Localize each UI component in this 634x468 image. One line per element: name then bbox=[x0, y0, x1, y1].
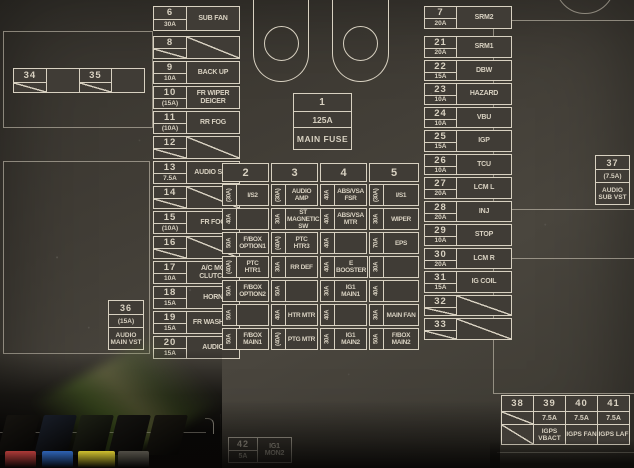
fuse-number: 19 bbox=[154, 312, 186, 324]
fuse-number-column: 3115A bbox=[424, 271, 457, 293]
fuse-label: IGP bbox=[456, 130, 512, 152]
fuse-label bbox=[236, 304, 269, 326]
fuse-label: MAIN FAN bbox=[383, 304, 419, 326]
fuse-body bbox=[108, 415, 151, 455]
fuse-number: 41 bbox=[598, 396, 629, 412]
fuse-cell-row: (30A)I/S1 bbox=[369, 184, 419, 206]
fuse-amps: 10A bbox=[154, 74, 186, 83]
fuse-cell-row: 70AEPS bbox=[369, 232, 419, 254]
fuse-number-column: 2910A bbox=[424, 224, 457, 246]
fuse-amps bbox=[154, 249, 186, 258]
fuse-label: PTC HTR1 bbox=[236, 256, 269, 278]
fuse-amps bbox=[425, 331, 456, 339]
fuse-amps: 15A bbox=[425, 73, 456, 81]
fuse-42-label: IG1 MON2 bbox=[257, 437, 292, 463]
fuse-number-column: 1915A bbox=[153, 311, 187, 334]
fuse-amps: 20A bbox=[425, 49, 456, 57]
fuse-amps: 20A bbox=[425, 261, 456, 269]
fuse-label bbox=[236, 208, 269, 230]
fuse-number: 21 bbox=[425, 37, 456, 49]
fuse-number: 22 bbox=[425, 61, 456, 73]
fuse-number-column: 2410A bbox=[424, 107, 457, 129]
relay-diagonal bbox=[14, 83, 46, 92]
left-fuse-column: 630ASUB FAN8910ABACK UP10(15A)FR WIPER D… bbox=[153, 6, 240, 366]
fuse-row-6: 630ASUB FAN bbox=[153, 6, 240, 31]
fuse-label: RR FOG bbox=[186, 111, 240, 134]
fuse-amps-vertical: 30A bbox=[369, 208, 384, 230]
fuse-amps-vertical: 40A bbox=[320, 184, 335, 206]
fuse-number: 25 bbox=[425, 131, 456, 143]
main-fuse-amps: 125A bbox=[294, 112, 351, 128]
fuse-row-25: 2515AIGP bbox=[424, 130, 512, 152]
fuse-cell-row: 30AST MAGNETIC SW bbox=[271, 208, 318, 230]
bottom-center-panel-line bbox=[220, 414, 221, 468]
fuse-row-21: 2120ASRM1 bbox=[424, 36, 512, 58]
fuse-amps: 7.5A bbox=[534, 412, 565, 425]
fuse-body bbox=[145, 415, 188, 455]
fuse-number-column: 2120A bbox=[424, 36, 457, 58]
fuse-label: HORN bbox=[186, 286, 240, 309]
fuse-label: IGPS LAF bbox=[598, 425, 629, 444]
fuse-amps-vertical: 30A bbox=[320, 328, 335, 350]
fuse-amps: 15A bbox=[154, 324, 186, 333]
fuse-row-30: 3020ALCM R bbox=[424, 248, 512, 270]
fuse-42-amps: 5A bbox=[229, 451, 257, 462]
fuse-comb-hook bbox=[205, 418, 214, 434]
fuse-amps-vertical: 30A bbox=[320, 280, 335, 302]
fuse-label bbox=[383, 280, 419, 302]
fuse-label: ST MAGNETIC SW bbox=[285, 208, 321, 230]
fuse-number-column: 720A bbox=[424, 6, 457, 29]
fuse-body bbox=[34, 415, 77, 455]
fuse-number-column: 1710A bbox=[153, 261, 187, 284]
fuse-body bbox=[0, 415, 40, 455]
fuse-number-column: 2215A bbox=[424, 60, 457, 82]
fuse-label: F/BOX MAIN1 bbox=[236, 328, 269, 350]
fuse-box-36: 36 (15A) AUDIO MAIN VST bbox=[108, 300, 144, 350]
fuse-label: F/BOX MAIN2 bbox=[383, 328, 419, 350]
fuse-amps-vertical: (30A) bbox=[369, 184, 384, 206]
fuse-label: WIPER bbox=[383, 208, 419, 230]
fuse-label bbox=[186, 186, 240, 209]
fuse-label: RR DEF bbox=[285, 256, 318, 278]
fuse-cap bbox=[5, 451, 36, 468]
fuse-amps bbox=[154, 199, 186, 208]
fuse-label: E BOOSTER bbox=[334, 256, 368, 278]
fuse-amps-vertical: 50A bbox=[369, 328, 384, 350]
relay-box-34-35-outline: 3435 bbox=[3, 31, 153, 128]
fuse-amps-vertical: 30A bbox=[369, 256, 384, 278]
fuse-row-20: 2015AAUDIO bbox=[153, 336, 240, 359]
fuse-number-column: 8 bbox=[153, 36, 187, 59]
fuse-number: 6 bbox=[154, 7, 186, 20]
fuse-36-number: 36 bbox=[109, 301, 143, 315]
fuse-column-40: 407.5AIGPS FAN bbox=[565, 395, 598, 445]
fuse-amps bbox=[154, 49, 186, 58]
fuse-box-panel: 3435 1 125A MAIN FUSE 36 (15A) AUDIO MAI… bbox=[0, 0, 634, 468]
fuse-label: INJ bbox=[456, 201, 512, 223]
fuse-label: LCM R bbox=[456, 248, 512, 270]
fuse-number-column: 137.5A bbox=[153, 161, 187, 184]
fuse-number-column: 11(10A) bbox=[153, 111, 187, 134]
fuse-amps: 10A bbox=[425, 120, 456, 128]
fuse-label: VBU bbox=[456, 107, 512, 129]
relay-cell bbox=[46, 68, 80, 93]
fuse-42-number: 42 bbox=[229, 438, 257, 451]
fuse-number-column: 15(10A) bbox=[153, 211, 187, 234]
fuse-cell-row: 40AABS/VSA FSR bbox=[320, 184, 367, 206]
fuse-cell-row: (40A)PTG MTR bbox=[271, 328, 318, 350]
fuse-cell-row: (40A)PTC HTR3 bbox=[271, 232, 318, 254]
fuse-cell-row: 30AIG1 MAIN2 bbox=[320, 328, 367, 350]
fuse-37-number: 37 bbox=[596, 156, 629, 170]
fuse-number: 30 bbox=[425, 249, 456, 261]
relay-cell bbox=[111, 68, 145, 93]
fuse-row-8: 8 bbox=[153, 36, 240, 59]
fuse-number-column: 33 bbox=[424, 318, 457, 340]
fuse-label: DBW bbox=[456, 60, 512, 82]
fuse-amps-vertical: 40A bbox=[320, 304, 335, 326]
fuse-row-24: 2410AVBU bbox=[424, 107, 512, 129]
fuse-row-31: 3115AIG COIL bbox=[424, 271, 512, 293]
fuse-cap bbox=[78, 451, 115, 468]
top-edge-cutout-arc bbox=[555, 0, 615, 14]
fuse-row-19: 1915AFR WASHER bbox=[153, 311, 240, 334]
fuse-label bbox=[502, 425, 533, 444]
fuse-column-39: 397.5AIGPS VBACT bbox=[533, 395, 566, 445]
fuse-number-column: 32 bbox=[424, 295, 457, 317]
fuse-column-header: 5 bbox=[369, 163, 419, 182]
fuse-number: 17 bbox=[154, 262, 186, 274]
fuse-amps-vertical: 30A bbox=[369, 304, 384, 326]
fuse-label: IG1 MAIN1 bbox=[334, 280, 367, 302]
fuse-row-7: 720ASRM2 bbox=[424, 6, 512, 29]
fuse-row-17: 1710AA/C MG CLUTCH bbox=[153, 261, 240, 284]
fuse-cell-row: 50AF/BOX MAIN2 bbox=[369, 328, 419, 350]
fuse-number: 7 bbox=[425, 7, 456, 19]
fuse-number-column: 2720A bbox=[424, 177, 457, 199]
fuse-amps-vertical: 30A bbox=[271, 256, 286, 278]
fuse-amps: (10A) bbox=[154, 224, 186, 233]
fuse-amps: (10A) bbox=[154, 124, 186, 133]
fuse-amps-vertical: (40A) bbox=[271, 232, 286, 254]
fuse-amps: 20A bbox=[425, 190, 456, 198]
fuse-number: 20 bbox=[154, 337, 186, 349]
fuse-label: BACK UP bbox=[186, 61, 240, 84]
fuse-number: 16 bbox=[154, 237, 186, 249]
fuse-label: SRM2 bbox=[456, 6, 512, 29]
bottom-right-edge-line bbox=[497, 452, 634, 453]
fuse-amps: 20A bbox=[425, 19, 456, 28]
fuse-number: 10 bbox=[154, 87, 186, 99]
fuse-label bbox=[186, 136, 240, 159]
fuse-cell-row: 40AE BOOSTER bbox=[320, 256, 367, 278]
relay-number: 35 bbox=[80, 69, 112, 83]
fuse-amps: 7.5A bbox=[598, 412, 629, 425]
fuse-row-33: 33 bbox=[424, 318, 512, 340]
fuse-number: 23 bbox=[425, 84, 456, 96]
fuse-column-header: 3 bbox=[271, 163, 318, 182]
fuse-label: EPS bbox=[383, 232, 419, 254]
fuse-label bbox=[456, 295, 512, 317]
fuse-cell-row: (30A)AUDIO AMP bbox=[271, 184, 318, 206]
fuse-number: 28 bbox=[425, 202, 456, 214]
fuse-amps: 30A bbox=[154, 20, 186, 30]
fuse-number: 24 bbox=[425, 108, 456, 120]
fuse-amps: 10A bbox=[425, 237, 456, 245]
fuse-amps: 15A bbox=[425, 284, 456, 292]
fuse-row-9: 910ABACK UP bbox=[153, 61, 240, 84]
fuse-row-26: 2610ATCU bbox=[424, 154, 512, 176]
fuse-label: SRM1 bbox=[456, 36, 512, 58]
fuse-cell-row: 40A bbox=[320, 304, 367, 326]
fuse-label: PTG MTR bbox=[285, 328, 318, 350]
fuse-36-label: AUDIO MAIN VST bbox=[109, 328, 143, 349]
fuse-number: 18 bbox=[154, 287, 186, 299]
fuse-cell-row: 40A bbox=[369, 280, 419, 302]
fuse-amps bbox=[154, 149, 186, 158]
fuse-amps bbox=[502, 412, 533, 425]
fuse-number-column: 910A bbox=[153, 61, 187, 84]
fuse-cell-row: 30AIG1 MAIN1 bbox=[320, 280, 367, 302]
fuse-amps: 10A bbox=[425, 167, 456, 175]
fuse-column-41: 417.5AIGPS LAF bbox=[597, 395, 630, 445]
right-lower-panel-outline bbox=[493, 258, 634, 394]
fuse-label: I/S1 bbox=[383, 184, 419, 206]
fuse-label: AUDIO AMP bbox=[285, 184, 318, 206]
fuse-number: 15 bbox=[154, 212, 186, 224]
fuse-number: 13 bbox=[154, 162, 186, 174]
fuse-amps: 15A bbox=[425, 143, 456, 151]
fuse-label: AUDIO SUB bbox=[186, 161, 240, 184]
fuse-row-10: 10(15A)FR WIPER DEICER bbox=[153, 86, 240, 109]
fuse-amps: 10A bbox=[154, 274, 186, 283]
relay-strip: 3435 bbox=[14, 68, 145, 93]
fuse-label: AUDIO bbox=[186, 336, 240, 359]
fuse-number-column: 2515A bbox=[424, 130, 457, 152]
fuse-label: LCM L bbox=[456, 177, 512, 199]
fuse-amps-vertical: 30A bbox=[271, 208, 286, 230]
fuse-amps-vertical: 50A bbox=[271, 280, 286, 302]
main-fuse-number: 1 bbox=[294, 94, 351, 112]
fuse-label: IGPS VBACT bbox=[534, 425, 565, 444]
fuse-amps: 20A bbox=[425, 214, 456, 222]
fuse-number: 26 bbox=[425, 155, 456, 167]
fuse-cell-row: 30A bbox=[369, 256, 419, 278]
fuse-amps: 10A bbox=[425, 96, 456, 104]
fuse-36-amps: (15A) bbox=[109, 315, 143, 328]
fuse-number: 38 bbox=[502, 396, 533, 412]
fuse-label: HTR MTR bbox=[285, 304, 318, 326]
fuse-number-column: 1815A bbox=[153, 286, 187, 309]
fuse-label: F/BOX OPTION2 bbox=[236, 280, 269, 302]
fuse-cell-row: 40AABS/VSA MTR bbox=[320, 208, 367, 230]
relay-cell-35: 35 bbox=[79, 68, 113, 93]
fuse-number-column: 630A bbox=[153, 6, 187, 31]
fuse-row-16: 16 bbox=[153, 236, 240, 259]
fuse-number: 12 bbox=[154, 137, 186, 149]
fuse-amps-vertical: (40A) bbox=[271, 328, 286, 350]
fuse-label: FR WASHER bbox=[186, 311, 240, 334]
fuse-amps: 15A bbox=[154, 299, 186, 308]
main-fuse-label: MAIN FUSE bbox=[294, 128, 351, 149]
fuse-row-32: 32 bbox=[424, 295, 512, 317]
fuse-row-13: 137.5AAUDIO SUB bbox=[153, 161, 240, 184]
fuse-cell-row: 30AWIPER bbox=[369, 208, 419, 230]
fuse-column-4: 440AABS/VSA FSR40AABS/VSA MTR40A40AE BOO… bbox=[320, 163, 367, 353]
fuse-37-label: AUDIO SUB VST bbox=[596, 183, 629, 204]
relay-diagonal bbox=[80, 83, 112, 92]
fuse-label bbox=[186, 36, 240, 59]
fuse-amps-vertical: 70A bbox=[369, 232, 384, 254]
fuse-cell-row: 40A bbox=[320, 232, 367, 254]
main-fuse-terminal-right-hole-icon bbox=[343, 26, 378, 61]
fuse-number: 8 bbox=[154, 37, 186, 49]
fuse-row-28: 2820AINJ bbox=[424, 201, 512, 223]
fuse-amps-vertical: 40A bbox=[320, 256, 335, 278]
fuse-amps: 7.5A bbox=[154, 174, 186, 183]
fuse-cell-row: 30ARR DEF bbox=[271, 256, 318, 278]
main-fuse-box: 1 125A MAIN FUSE bbox=[293, 93, 352, 150]
fuse-box-37: 37 (7.5A) AUDIO SUB VST bbox=[595, 155, 630, 205]
fuse-label: IG COIL bbox=[456, 271, 512, 293]
fuse-amps: 15A bbox=[154, 349, 186, 358]
fuse-amps-vertical: (30A) bbox=[271, 184, 286, 206]
fuse-37-amps: (7.5A) bbox=[596, 170, 629, 183]
relay-number: 34 bbox=[14, 69, 46, 83]
fuse-column-3: 3(30A)AUDIO AMP30AST MAGNETIC SW(40A)PTC… bbox=[271, 163, 318, 353]
fuse-number-column: 10(15A) bbox=[153, 86, 187, 109]
fuse-number: 39 bbox=[534, 396, 565, 412]
relay-cell-34: 34 bbox=[13, 68, 47, 93]
fuse-cell-row: 50A bbox=[271, 280, 318, 302]
fuse-amps: (15A) bbox=[154, 99, 186, 108]
fuse-label: TCU bbox=[456, 154, 512, 176]
fuse-label: IG1 MAIN2 bbox=[334, 328, 367, 350]
fuse-label: ABS/VSA MTR bbox=[334, 208, 367, 230]
fuse-number-column: 3020A bbox=[424, 248, 457, 270]
fuse-row-29: 2910ASTOP bbox=[424, 224, 512, 246]
fuse-number-column: 2820A bbox=[424, 201, 457, 223]
fuse-box-42: 42 5A IG1 MON2 bbox=[228, 437, 292, 463]
fuse-number-column: 2015A bbox=[153, 336, 187, 359]
fuse-label bbox=[383, 256, 419, 278]
fuse-label: FR FOG bbox=[186, 211, 240, 234]
main-fuse-terminal-left-hole-icon bbox=[264, 26, 299, 61]
fuse-label bbox=[186, 236, 240, 259]
bottom-right-fuse-table: 38397.5AIGPS VBACT407.5AIGPS FAN417.5AIG… bbox=[502, 395, 634, 445]
fuse-number-column: 14 bbox=[153, 186, 187, 209]
fuse-label: I/S2 bbox=[236, 184, 269, 206]
fuse-cell-row: 40AHTR MTR bbox=[271, 304, 318, 326]
fuse-label: ABS/VSA FSR bbox=[334, 184, 367, 206]
fuse-number: 33 bbox=[425, 319, 456, 331]
fuse-column-5: 5(30A)I/S130AWIPER70AEPS30A40A30AMAIN FA… bbox=[369, 163, 419, 353]
fuse-number-column: 2610A bbox=[424, 154, 457, 176]
fuse-amps bbox=[425, 308, 456, 316]
fuse-label: FR WIPER DEICER bbox=[186, 86, 240, 109]
fuse-row-23: 2310AHAZARD bbox=[424, 83, 512, 105]
fuse-label bbox=[285, 280, 318, 302]
fuse-label: SUB FAN bbox=[186, 6, 240, 31]
fuse-row-12: 12 bbox=[153, 136, 240, 159]
fuse-label: HAZARD bbox=[456, 83, 512, 105]
fuse-label: F/BOX OPTION1 bbox=[236, 232, 269, 254]
fuse-number: 29 bbox=[425, 225, 456, 237]
fuse-number: 11 bbox=[154, 112, 186, 124]
fuse-amps-vertical: 40A bbox=[271, 304, 286, 326]
fuse-row-18: 1815AHORN bbox=[153, 286, 240, 309]
fuse-label: STOP bbox=[456, 224, 512, 246]
fuse-number-column: 16 bbox=[153, 236, 187, 259]
fuse-label: A/C MG CLUTCH bbox=[186, 261, 240, 284]
fuse-row-11: 11(10A)RR FOG bbox=[153, 111, 240, 134]
fuse-column-38: 38 bbox=[501, 395, 534, 445]
fuse-amps: 7.5A bbox=[566, 412, 597, 425]
right-fuse-column: 720ASRM22120ASRM12215ADBW2310AHAZARD2410… bbox=[424, 6, 512, 346]
fuse-row-22: 2215ADBW bbox=[424, 60, 512, 82]
fuse-cap bbox=[118, 451, 149, 468]
fuse-number: 14 bbox=[154, 187, 186, 199]
fuse-label bbox=[456, 318, 512, 340]
fuse-row-14: 14 bbox=[153, 186, 240, 209]
fuse-body bbox=[71, 415, 114, 455]
fuse-label: IGPS FAN bbox=[566, 425, 597, 444]
fuse-number-column: 2310A bbox=[424, 83, 457, 105]
fuse-amps-vertical: 40A bbox=[320, 232, 335, 254]
fuse-row-15: 15(10A)FR FOG bbox=[153, 211, 240, 234]
fuse-label bbox=[334, 304, 367, 326]
fuse-number: 27 bbox=[425, 178, 456, 190]
fuse-number: 40 bbox=[566, 396, 597, 412]
fuse-number-column: 12 bbox=[153, 136, 187, 159]
fuse-cell-row: 30AMAIN FAN bbox=[369, 304, 419, 326]
fuse-row-27: 2720ALCM L bbox=[424, 177, 512, 199]
physical-fuses-area bbox=[0, 385, 220, 468]
fuse-column-header: 4 bbox=[320, 163, 367, 182]
fuse-amps-vertical: 40A bbox=[369, 280, 384, 302]
fuse-number: 9 bbox=[154, 62, 186, 74]
fuse-number: 32 bbox=[425, 296, 456, 308]
fuse-label bbox=[334, 232, 367, 254]
fuse-cap bbox=[42, 451, 73, 468]
fuse-amps-vertical: 40A bbox=[320, 208, 335, 230]
fuse-number: 31 bbox=[425, 272, 456, 284]
fuse-label: PTC HTR3 bbox=[285, 232, 318, 254]
